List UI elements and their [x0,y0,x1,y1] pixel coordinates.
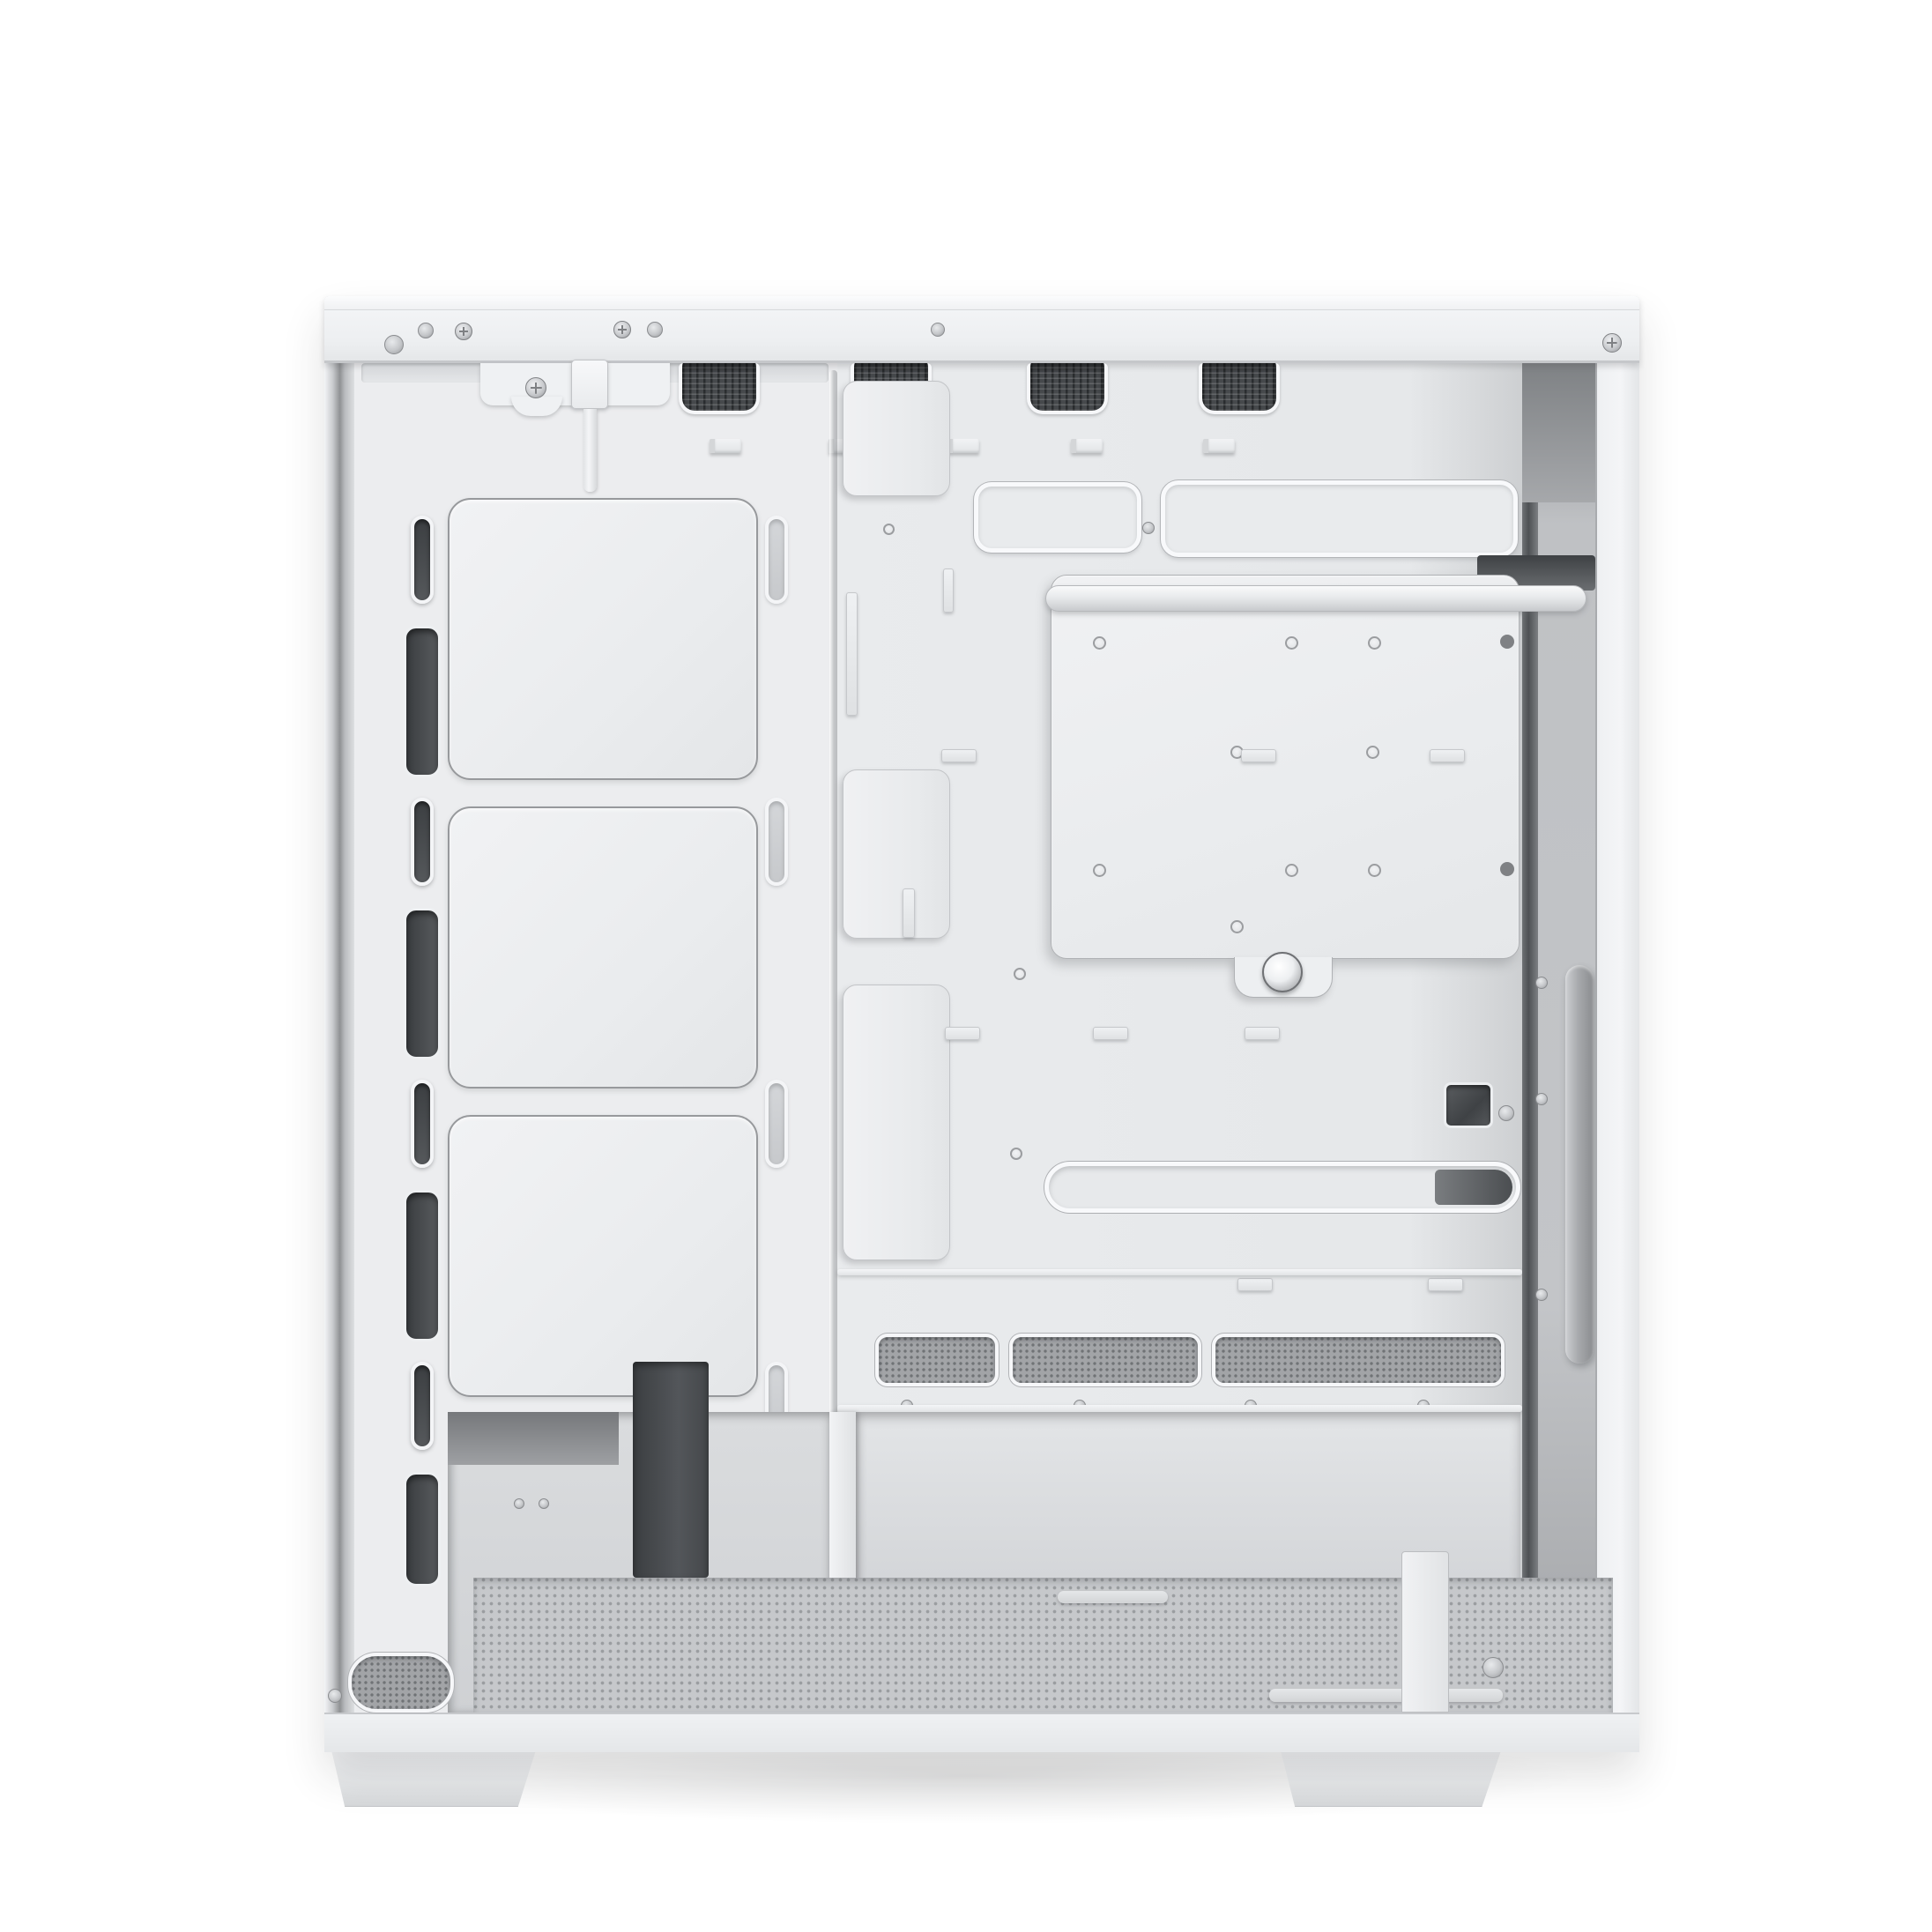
cable-cover [843,769,950,939]
fan-slot [411,1362,434,1450]
ledge-tab [941,749,977,762]
rear-rivet [1535,1093,1548,1105]
floor-rivet [1482,1657,1504,1678]
ledge-tab [1237,1278,1273,1291]
tray-rivet [1498,1105,1514,1121]
fan-slot-opening [404,1190,441,1341]
psu-support-post [1401,1551,1449,1713]
plate-hole [1093,864,1106,877]
fan-mount-pad [448,806,758,1089]
vertical-support-bar [1565,965,1594,1364]
fan-slot [411,798,434,886]
rear-rivet [1535,1289,1548,1301]
rail-rivet [384,335,404,354]
rail-screw [613,321,631,338]
fan-slot-opening [404,626,441,777]
fan-mount-pad [448,1115,758,1397]
alignment-tab [1071,439,1103,453]
bottom-vent-strip [348,1653,454,1713]
alignment-tab [1203,439,1235,453]
fan-slot [411,1080,434,1168]
floor-rivet [514,1498,524,1509]
rear-recess-top [1522,361,1595,502]
bracket-screw [525,377,546,398]
rear-frame-edge [1595,296,1639,1752]
plate-pin [1500,635,1514,649]
scene: Product photo of a white mid-tower PC ca… [0,0,1932,1932]
shroud-vent [1009,1334,1201,1386]
rear-rivet [1535,977,1548,989]
fan-slot-right [765,798,788,886]
ledge-tab [945,1027,980,1040]
screw-hole [1014,968,1026,980]
plate-hole [1230,920,1244,933]
ledge-tab [1430,749,1465,762]
mount-bracket-plate [1051,575,1520,959]
fan-slot-right [765,1080,788,1168]
fan-slot-opening [404,908,441,1059]
fan-slot-right [765,516,788,604]
ledge-tab [1245,1027,1280,1040]
ledge-tab [1428,1278,1463,1291]
top-rail-lip [324,296,1639,310]
screw-hole [1010,1148,1022,1160]
plate-hole [1368,864,1381,877]
ledge-tab [1093,1027,1128,1040]
ledge-tab [1241,749,1276,762]
clip-tab [846,592,858,716]
clip-tab [903,888,915,938]
tray-rivet [1142,522,1155,534]
clip-tab [943,568,954,613]
rail-screw [455,323,472,340]
screw-hole [883,524,895,535]
bracket-rail-rod [1045,585,1586,612]
thumbscrew [1262,952,1303,992]
top-vent-mesh [679,363,760,414]
cable-cover [843,985,950,1260]
bottom-rail [324,1713,1639,1752]
fan-mount-pad [448,498,758,780]
top-vent-mesh [1027,363,1108,414]
cable-grommet-cover [974,482,1141,553]
psu-rail-runner [1058,1591,1168,1603]
shroud-top-edge [837,1269,1522,1275]
plate-hole [1368,636,1381,650]
front-panel-cable [583,409,597,492]
cable-cover [843,381,950,496]
rear-foot [1271,1750,1511,1807]
cable-connector [571,360,608,409]
rail-rivet [647,322,663,338]
alignment-tab [710,439,741,453]
plate-hole [1285,636,1298,650]
floor-rivet [539,1498,549,1509]
front-foot [323,1750,545,1807]
plate-hole [1366,746,1379,759]
io-cutout [1444,1082,1493,1128]
plate-hole [1093,636,1106,650]
cable-grommet-cover [1161,480,1518,557]
rail-rivet [931,323,945,337]
corner-screw [1602,333,1622,353]
panel-gap [633,1362,709,1578]
grommet-open-end [1435,1170,1512,1205]
fan-slot [411,516,434,604]
psu-rail-runner [1269,1689,1503,1702]
bay-top-edge [837,1405,1522,1412]
plate-pin [1500,862,1514,876]
corner-rivet [328,1689,342,1703]
top-vent-mesh [1199,363,1280,414]
shroud-vent [1212,1334,1505,1386]
front-panel-edge [324,296,354,1752]
alignment-tab [947,439,979,453]
under-pad-shadow [448,1412,619,1465]
shroud-vent [875,1334,999,1386]
fan-slot-opening [404,1472,441,1586]
plate-hole [1285,864,1298,877]
rail-rivet [418,323,434,338]
